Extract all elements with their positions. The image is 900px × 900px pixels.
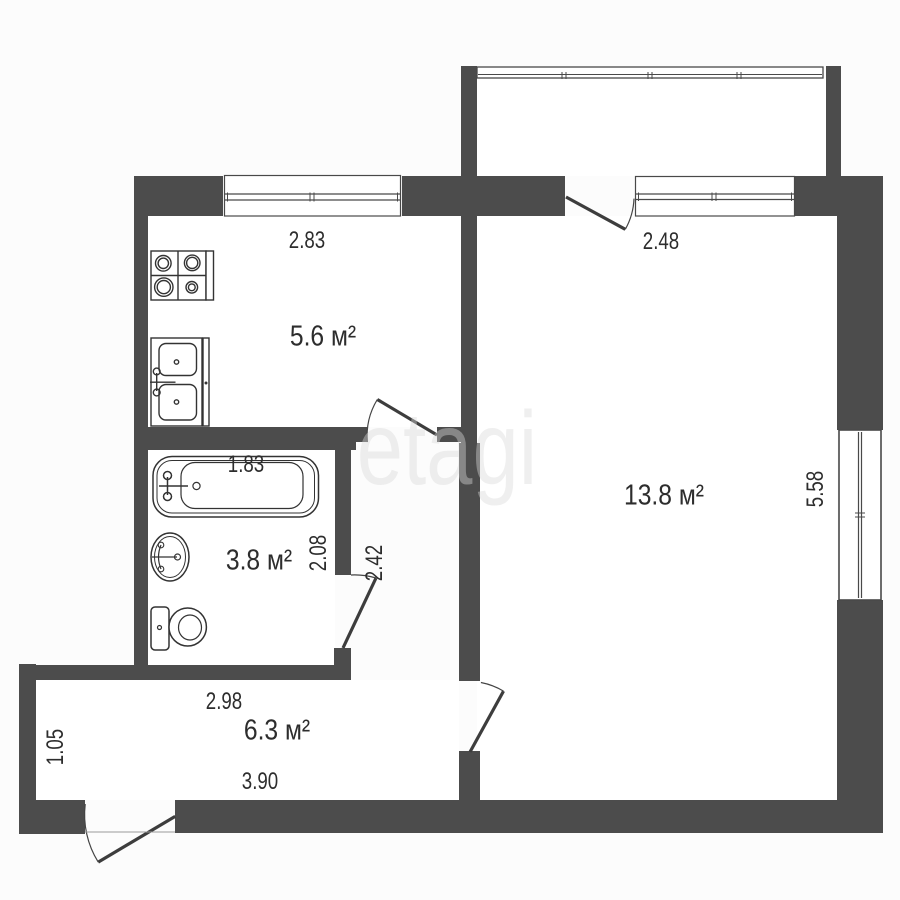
svg-text:1.05: 1.05 bbox=[42, 729, 69, 765]
svg-text:3.8 м²: 3.8 м² bbox=[226, 544, 292, 576]
svg-text:2.08: 2.08 bbox=[305, 535, 332, 571]
svg-text:1.83: 1.83 bbox=[228, 451, 264, 478]
svg-text:2.83: 2.83 bbox=[289, 227, 325, 254]
svg-text:6.3 м²: 6.3 м² bbox=[244, 714, 310, 746]
svg-text:2.48: 2.48 bbox=[643, 228, 679, 255]
svg-text:etagi: etagi bbox=[357, 390, 537, 506]
svg-text:2.42: 2.42 bbox=[361, 545, 388, 581]
svg-text:5.6 м²: 5.6 м² bbox=[290, 320, 356, 352]
svg-text:5.58: 5.58 bbox=[802, 471, 829, 507]
svg-text:3.90: 3.90 bbox=[242, 768, 278, 795]
svg-text:2.98: 2.98 bbox=[206, 688, 242, 715]
svg-text:13.8 м²: 13.8 м² bbox=[624, 479, 704, 511]
